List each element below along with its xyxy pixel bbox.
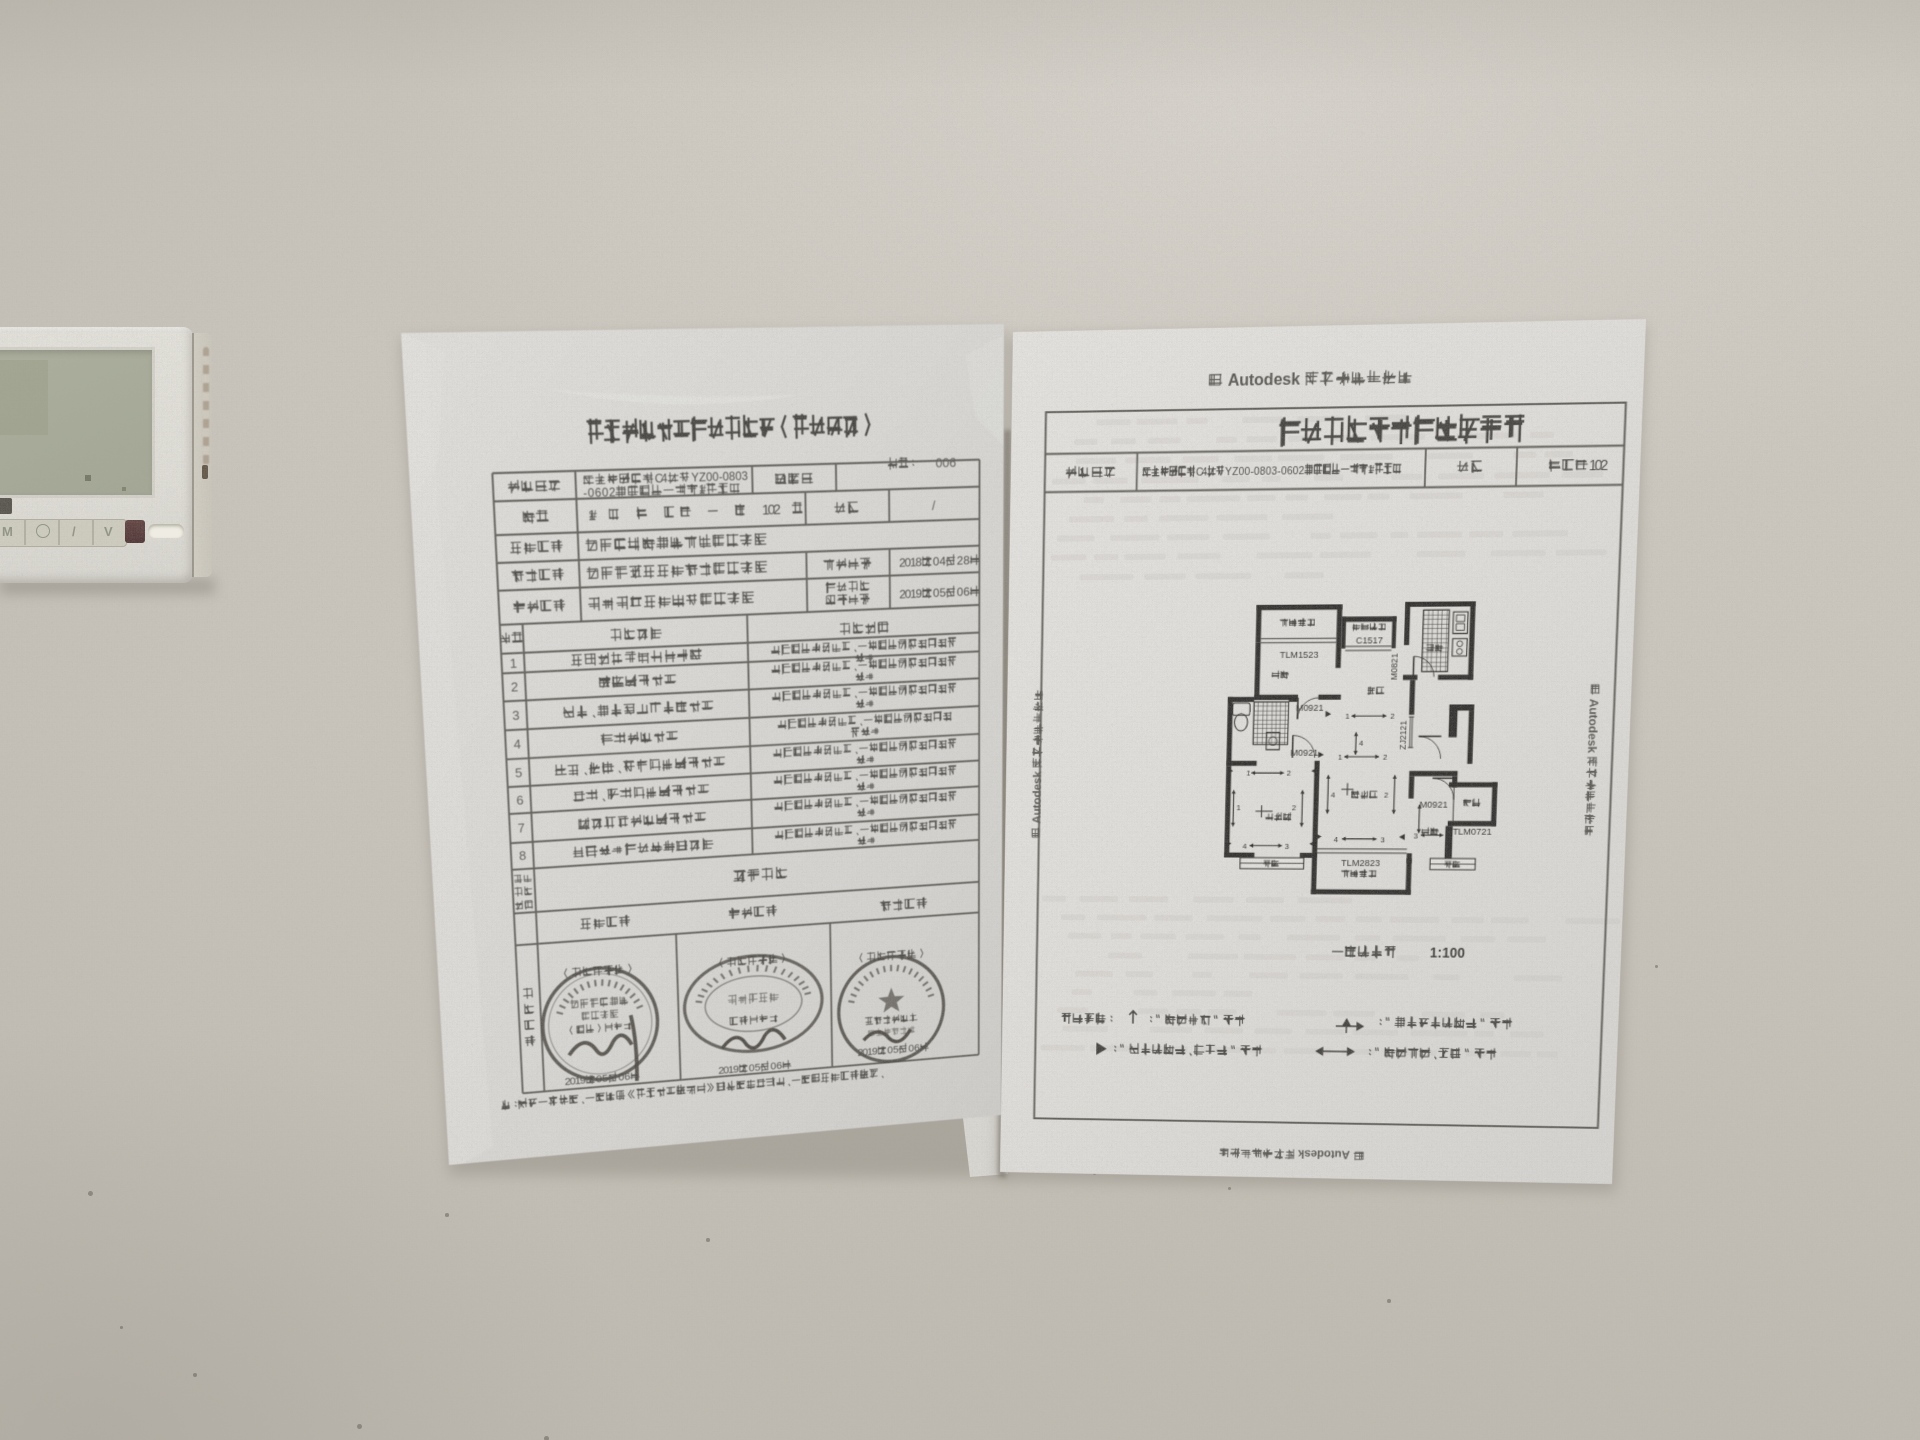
svg-text:1: 1	[1246, 769, 1250, 778]
svg-text:2: 2	[1390, 712, 1395, 721]
svg-text:05: 05	[887, 1043, 899, 1056]
svg-text:6: 6	[516, 794, 524, 808]
svg-text:7: 7	[517, 822, 525, 836]
svg-text:-0602: -0602	[583, 485, 616, 500]
svg-text:1: 1	[509, 657, 517, 672]
svg-text:3: 3	[1413, 831, 1418, 840]
svg-text:4: 4	[1242, 842, 1246, 851]
svg-text:3: 3	[1446, 831, 1451, 840]
svg-text:1#: 1#	[588, 508, 598, 524]
svg-text:04: 04	[933, 554, 946, 569]
svg-text:1#: 1#	[699, 482, 707, 496]
svg-text:06: 06	[618, 1070, 630, 1083]
svg-text:2: 2	[511, 680, 519, 695]
svg-text:C4: C4	[655, 471, 668, 485]
svg-text:05: 05	[933, 585, 946, 600]
svg-text:M0921: M0921	[1419, 800, 1448, 810]
svg-text:2019: 2019	[718, 1063, 739, 1077]
svg-text:06: 06	[957, 584, 970, 599]
svg-text:YZ00-0803-0602: YZ00-0803-0602	[1225, 466, 1305, 479]
svg-text:2: 2	[1287, 769, 1291, 778]
svg-text:1:100: 1:100	[1430, 945, 1466, 961]
svg-text:102: 102	[1589, 457, 1609, 473]
svg-text:1: 1	[1236, 803, 1240, 812]
svg-text:006: 006	[936, 456, 957, 471]
svg-text:2018: 2018	[899, 554, 922, 569]
svg-text:4: 4	[1334, 835, 1339, 844]
svg-text:1: 1	[1338, 753, 1343, 762]
svg-text:1: 1	[1345, 712, 1350, 721]
svg-text:3: 3	[512, 709, 520, 724]
svg-text:C4: C4	[1196, 467, 1208, 479]
svg-text:2: 2	[1384, 790, 1389, 799]
svg-text:2019: 2019	[899, 586, 922, 601]
svg-text:5: 5	[515, 766, 523, 780]
svg-text:M0821: M0821	[1389, 653, 1400, 680]
svg-text:4: 4	[1331, 790, 1336, 799]
svg-text:C1517: C1517	[1356, 635, 1384, 645]
svg-text:05: 05	[749, 1061, 761, 1074]
svg-text:05: 05	[596, 1072, 609, 1085]
svg-text:1#: 1#	[1368, 465, 1375, 477]
svg-text:06: 06	[908, 1041, 919, 1054]
svg-text:TLM1523: TLM1523	[1280, 650, 1319, 660]
svg-text:Autodesk: Autodesk	[1031, 768, 1044, 827]
svg-text:2019: 2019	[564, 1074, 586, 1088]
svg-text:2: 2	[1292, 803, 1296, 812]
svg-text:M0921: M0921	[1296, 703, 1324, 713]
svg-text:2019: 2019	[857, 1045, 877, 1059]
svg-text:Autodesk: Autodesk	[1295, 1147, 1353, 1160]
svg-text:4: 4	[1359, 738, 1364, 747]
svg-text:TLM2823: TLM2823	[1341, 858, 1380, 868]
svg-text:102: 102	[762, 502, 781, 518]
svg-text:2: 2	[1383, 753, 1388, 762]
svg-text:ZJ2121: ZJ2121	[1398, 720, 1409, 749]
svg-text:8: 8	[519, 850, 527, 864]
svg-text:28: 28	[957, 553, 970, 568]
svg-text:3: 3	[1380, 835, 1385, 844]
svg-text:4: 4	[513, 738, 521, 753]
svg-text:TLM0721: TLM0721	[1452, 826, 1491, 836]
svg-text:Autodesk: Autodesk	[1585, 695, 1600, 756]
svg-text:3: 3	[1285, 842, 1289, 851]
svg-text:06: 06	[770, 1059, 782, 1072]
svg-text:Autodesk: Autodesk	[1223, 371, 1304, 390]
svg-text:M0921: M0921	[1290, 748, 1318, 758]
